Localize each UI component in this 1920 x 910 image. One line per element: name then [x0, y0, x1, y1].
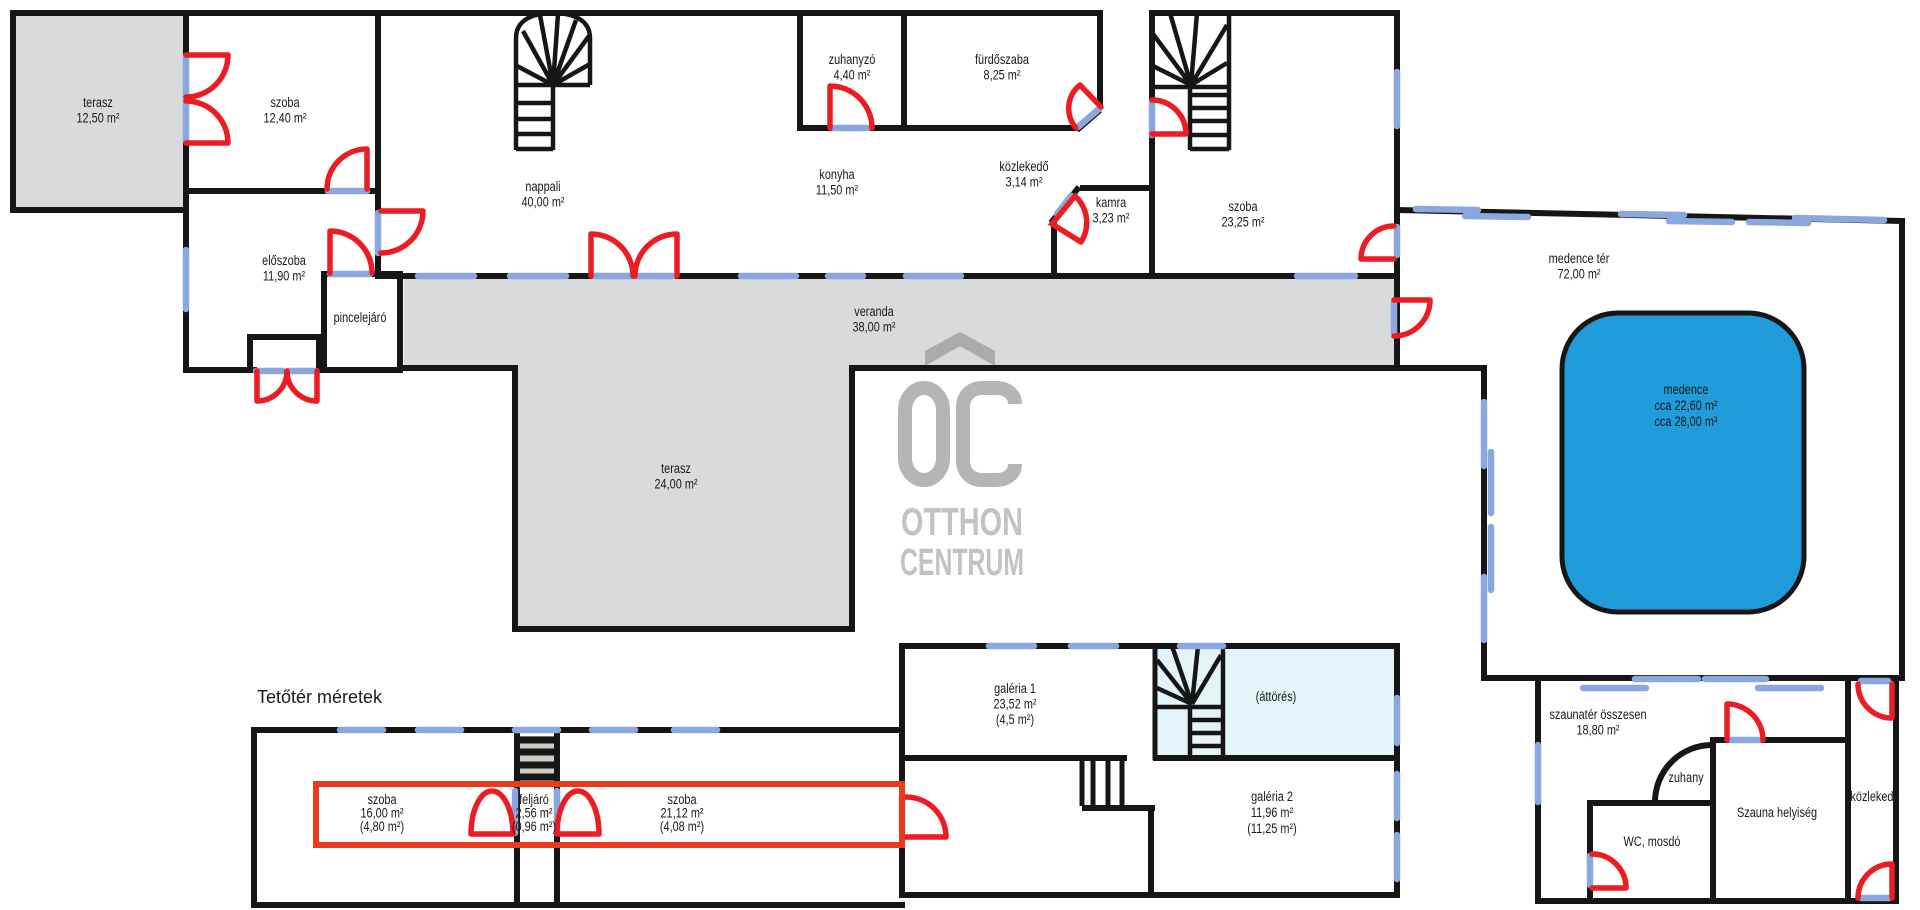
svg-text:23,25 m²: 23,25 m² — [1221, 214, 1264, 230]
svg-text:szoba: szoba — [1228, 199, 1257, 215]
svg-text:CENTRUM: CENTRUM — [900, 542, 1024, 584]
svg-text:közlekedő: közlekedő — [1850, 789, 1899, 805]
svg-text:12,40 m²: 12,40 m² — [263, 110, 306, 126]
svg-text:Szauna helyiség: Szauna helyiség — [1737, 805, 1817, 821]
svg-text:(4,80 m²): (4,80 m²) — [360, 819, 404, 835]
svg-text:közlekedő: közlekedő — [999, 159, 1048, 175]
svg-text:veranda: veranda — [854, 304, 893, 320]
svg-text:kamra: kamra — [1096, 195, 1126, 211]
svg-text:(4,5 m²): (4,5 m²) — [996, 712, 1034, 728]
svg-text:18,80 m²: 18,80 m² — [1576, 722, 1619, 738]
svg-text:cca 28,00 m³: cca 28,00 m³ — [1654, 414, 1717, 430]
svg-text:40,00 m²: 40,00 m² — [521, 194, 564, 210]
svg-text:galéria 1: galéria 1 — [994, 681, 1036, 697]
svg-text:11,90 m²: 11,90 m² — [263, 268, 305, 284]
svg-text:3,23 m²: 3,23 m² — [1092, 210, 1129, 226]
svg-text:nappali: nappali — [525, 179, 560, 195]
svg-text:pincelejáró: pincelejáró — [334, 310, 387, 326]
svg-text:zuhany: zuhany — [1668, 770, 1704, 786]
svg-text:23,52 m²: 23,52 m² — [993, 696, 1036, 712]
svg-text:12,50 m²: 12,50 m² — [76, 110, 119, 126]
svg-text:11,96 m²: 11,96 m² — [1251, 805, 1293, 821]
svg-text:medence tér: medence tér — [1549, 251, 1610, 267]
svg-text:cca 22,60 m²: cca 22,60 m² — [1654, 398, 1717, 414]
svg-text:előszoba: előszoba — [262, 253, 306, 269]
svg-text:zuhanyzó: zuhanyzó — [829, 52, 876, 68]
svg-text:(0,96 m²): (0,96 m²) — [512, 819, 556, 835]
svg-text:3,14 m²: 3,14 m² — [1005, 174, 1042, 190]
svg-text:4,40 m²: 4,40 m² — [833, 67, 870, 83]
svg-text:terasz: terasz — [83, 95, 113, 111]
svg-text:szaunatér összesen: szaunatér összesen — [1549, 707, 1646, 723]
svg-text:38,00 m²: 38,00 m² — [852, 319, 895, 335]
svg-text:Tetőtér méretek: Tetőtér méretek — [257, 687, 383, 707]
svg-text:OTTHON: OTTHON — [901, 501, 1023, 544]
svg-text:11,50 m²: 11,50 m² — [816, 182, 858, 198]
svg-text:WC, mosdó: WC, mosdó — [1623, 834, 1680, 850]
svg-text:szoba: szoba — [270, 95, 299, 111]
svg-text:72,00 m²: 72,00 m² — [1557, 266, 1600, 282]
svg-text:konyha: konyha — [819, 167, 854, 183]
svg-text:fürdőszaba: fürdőszaba — [975, 52, 1029, 68]
svg-text:(áttörés): (áttörés) — [1256, 689, 1297, 705]
svg-text:(11,25 m²): (11,25 m²) — [1247, 821, 1297, 837]
svg-text:(4,08 m²): (4,08 m²) — [660, 819, 704, 835]
svg-text:galéria 2: galéria 2 — [1251, 789, 1293, 805]
svg-text:8,25 m²: 8,25 m² — [983, 67, 1020, 83]
svg-text:24,00 m²: 24,00 m² — [654, 476, 697, 492]
svg-text:medence: medence — [1664, 382, 1709, 398]
svg-text:terasz: terasz — [661, 461, 691, 477]
